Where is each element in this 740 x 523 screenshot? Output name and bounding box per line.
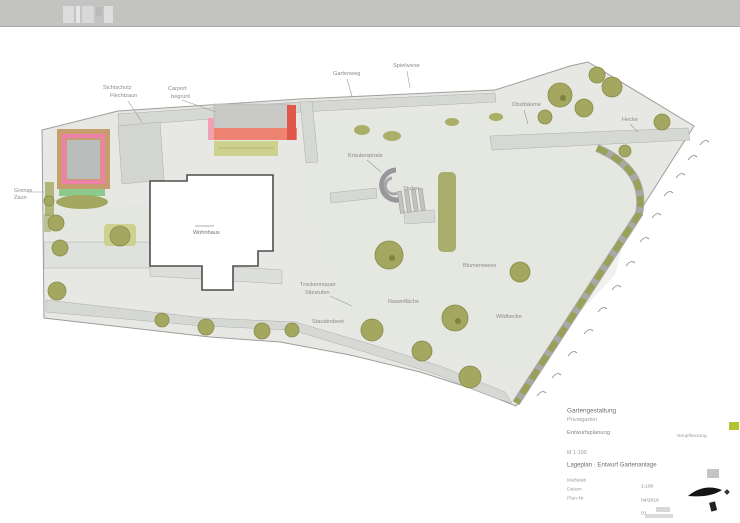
title-block: Gartengestaltung Privatgarten Entwurfspl… [567, 405, 740, 521]
titleblock-mark [656, 507, 670, 512]
plan-label: Carport [168, 86, 187, 92]
plan-label: Grenze [14, 188, 32, 194]
plan-label: Rasenfläche [388, 299, 419, 305]
field-value: 1:100 [641, 483, 653, 489]
plan-label: Wohnhaus [193, 230, 220, 236]
project-title: Gartengestaltung [567, 407, 616, 414]
titleblock-bar [645, 514, 673, 518]
field-label: Datum [567, 486, 582, 492]
plan-label: Spielwiese [393, 63, 420, 69]
plan-label: Wildhecke [496, 314, 522, 320]
plan-label: Gartenweg [333, 71, 360, 77]
project-subtitle: Privatgarten [567, 416, 597, 422]
plan-label: Trockenmauer [300, 282, 336, 288]
plan-label: Obstbäume [512, 102, 541, 108]
field-label: Plan-Nr. [567, 495, 585, 501]
plan-label: Stufen [403, 186, 419, 192]
field-value: 04/2016 [641, 497, 659, 503]
north-arrow-icon [682, 469, 740, 519]
plan-label: begrünt [171, 94, 190, 100]
plan-label: Blumenwiese [463, 263, 496, 269]
legend-label: Neupflanzung [677, 433, 712, 438]
plan-label: Hecke [622, 117, 638, 123]
plan-label: Sitzstufen [305, 290, 330, 296]
legend-swatch [729, 422, 739, 430]
page: Sichtschutz Flechtzaun Carport begrünt G… [0, 0, 740, 523]
plan-label: Flechtzaun [110, 93, 137, 99]
scale-note: M 1:100 [567, 449, 587, 455]
plan-type: Entwurfsplanung [567, 429, 610, 435]
plan-label: Kräuterspirale [348, 153, 383, 159]
field-label: Maßstab [567, 477, 586, 483]
plan-label: Zaun [14, 195, 27, 201]
drawing-title: Lageplan · Entwurf Gartenanlage [567, 461, 657, 468]
plan-label: Sichtschutz [103, 85, 132, 91]
plan-label: Staudenbeet [312, 319, 344, 325]
